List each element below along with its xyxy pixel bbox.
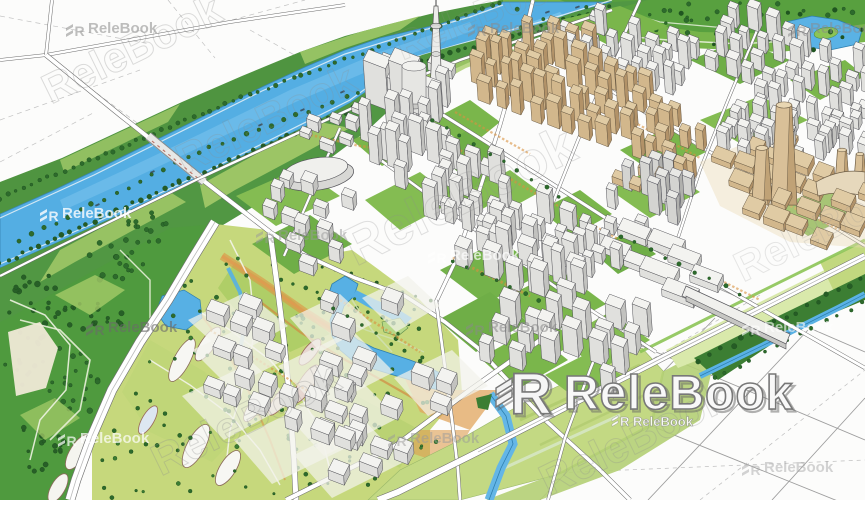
svg-text:R: R [67,433,77,449]
svg-text:ReleBook: ReleBook [764,459,834,476]
svg-text:ReleBook: ReleBook [450,247,520,264]
svg-text:R: R [75,23,85,39]
svg-text:ReleBook: ReleBook [410,430,480,447]
svg-text:R: R [751,322,761,338]
svg-text:R: R [95,322,105,338]
svg-text:R: R [751,462,761,478]
svg-text:ReleBook: ReleBook [764,319,834,336]
svg-text:ReleBook: ReleBook [810,20,865,37]
svg-text:ReleBook: ReleBook [108,319,178,336]
svg-text:R: R [797,23,807,39]
svg-text:ReleBook: ReleBook [62,205,132,222]
svg-text:R: R [510,362,552,427]
svg-text:R: R [475,322,485,338]
svg-text:R ReleBook: R ReleBook [620,414,694,429]
svg-text:ReleBook: ReleBook [80,430,150,447]
svg-text:R: R [437,250,447,266]
svg-text:R: R [397,433,407,449]
svg-text:R: R [49,208,59,224]
svg-text:ReleBook: ReleBook [488,319,558,336]
svg-text:R: R [265,230,275,246]
svg-text:ReleBook: ReleBook [564,367,793,420]
